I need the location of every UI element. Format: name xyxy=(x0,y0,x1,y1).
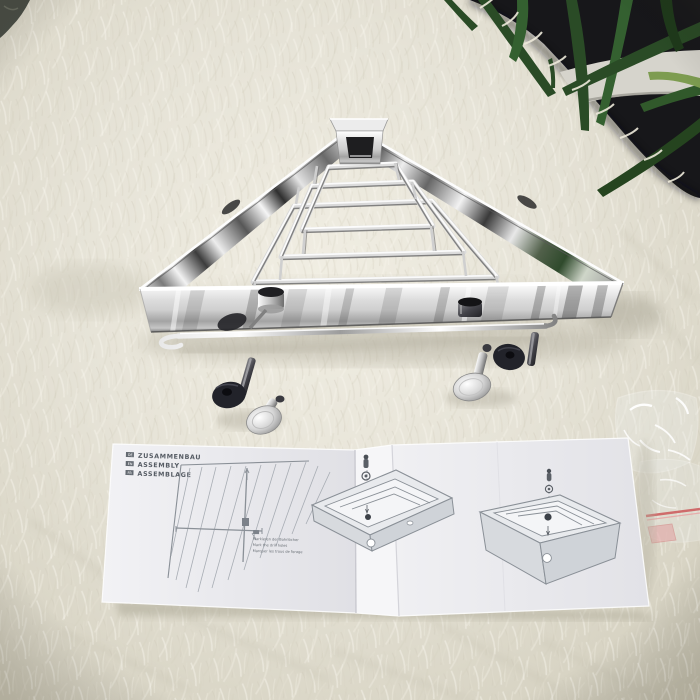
photo-canvas: DE ZUSAMMENBAU EN ASSEMBLY FR ASSEMBLAGE… xyxy=(0,0,700,700)
vignette xyxy=(0,0,700,700)
product-photo: DE ZUSAMMENBAU EN ASSEMBLY FR ASSEMBLAGE… xyxy=(0,0,700,700)
